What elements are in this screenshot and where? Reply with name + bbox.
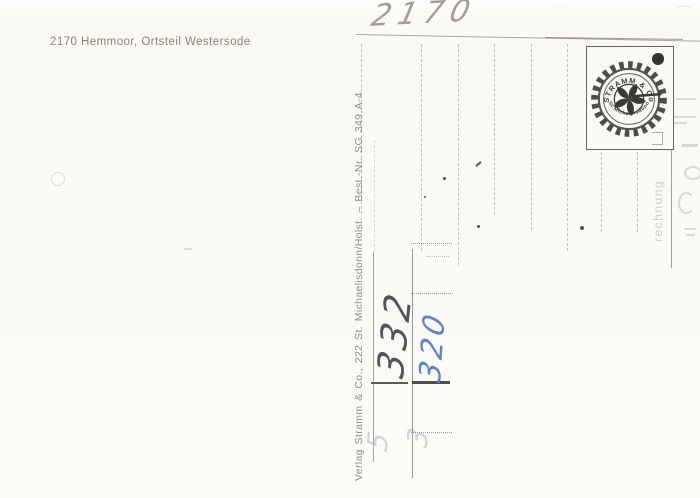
handwritten-number-faint-right: 3 [401, 424, 435, 450]
dust-speck [475, 161, 482, 167]
handwritten-number-blue: 320 [413, 303, 453, 391]
postcard-back-scan: 2170 Hemmoor, Ortsteil Westersode 2170 V… [0, 0, 700, 498]
bleedthrough-mark [676, 5, 692, 14]
form-column-line [421, 44, 422, 251]
ink-dot [652, 53, 664, 65]
bleedthrough-mark [674, 116, 696, 118]
form-column-line [374, 140, 375, 252]
bleedthrough-bracket-mark [652, 132, 663, 145]
bleedthrough-mark [676, 98, 696, 100]
form-column-line [361, 44, 362, 214]
bleedthrough-mark [684, 166, 700, 180]
bleedthrough-mark [678, 192, 695, 214]
ledger-dotted-line [427, 256, 449, 257]
bleedthrough-vertical-text: rechnung [651, 180, 665, 242]
dust-speck [184, 248, 192, 250]
location-caption: 2170 Hemmoor, Ortsteil Westersode [50, 36, 251, 48]
handwritten-number-top: 2170 [368, 0, 480, 34]
form-column-line [671, 150, 672, 268]
form-column-line [494, 44, 495, 215]
dust-speck [424, 196, 426, 198]
ledger-dotted-line [411, 243, 452, 244]
dust-speck [443, 177, 446, 180]
form-column-line [637, 152, 638, 232]
bleedthrough-mark [556, 4, 564, 10]
publisher-logo-stamp-icon: STRAMM & Co St.Michaelisdonn [586, 56, 672, 142]
form-column-line [601, 152, 602, 232]
form-column-line [567, 44, 568, 251]
bleedthrough-mark [684, 228, 696, 230]
dust-speck [477, 225, 480, 228]
publisher-imprint: Verlag Stramm & Co., 222 St. Michaelisdo… [353, 92, 365, 481]
bleedthrough-mark [682, 144, 698, 147]
handwritten-number-faint-left: 5 [361, 428, 395, 454]
dust-speck [580, 226, 584, 230]
bleedthrough-mark [686, 234, 695, 236]
form-column-line [458, 44, 459, 265]
dust-speck [51, 172, 65, 186]
form-column-line [531, 44, 532, 230]
bleedthrough-mark [674, 122, 687, 124]
